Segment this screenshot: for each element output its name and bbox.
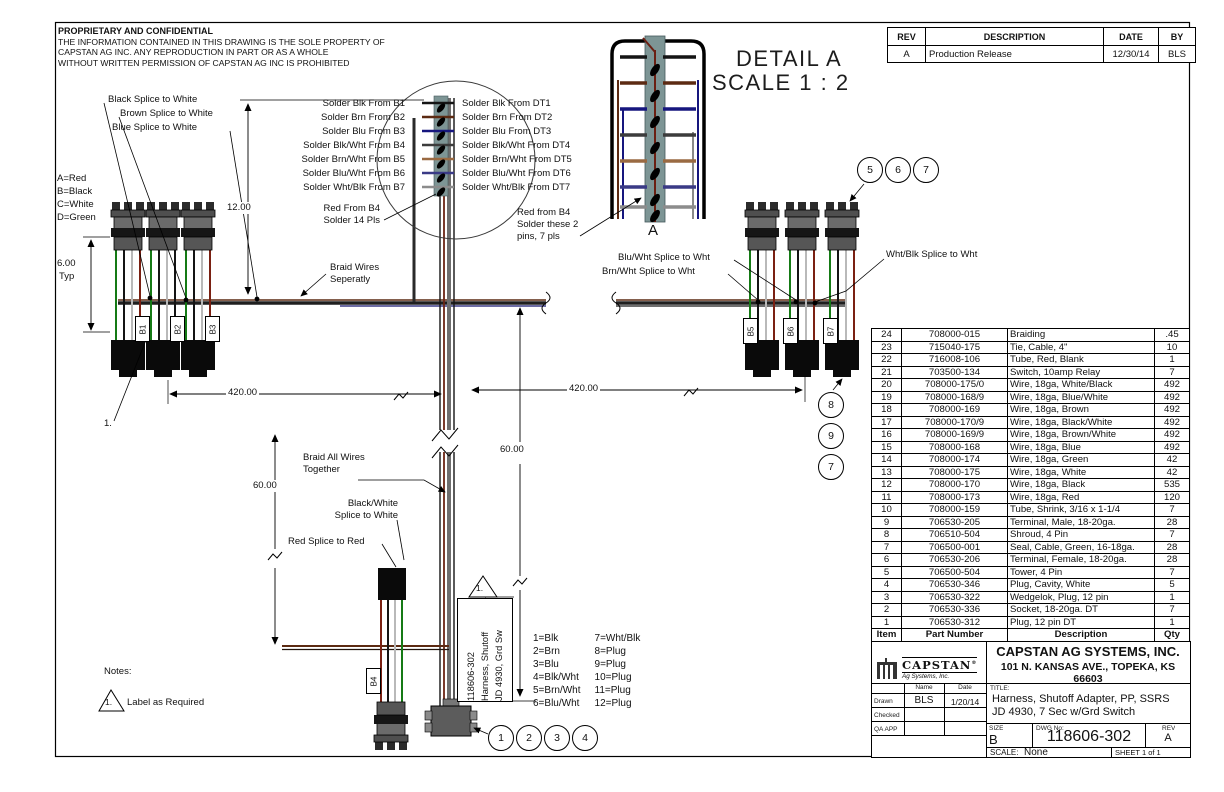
table-cell: 7 [1155,604,1190,617]
company-name: CAPSTAN AG SYSTEMS, INC. [986,644,1190,659]
table-cell: 708000-170/9 [902,416,1008,429]
table-cell: 708000-174 [902,454,1008,467]
table-cell: 708000-175 [902,466,1008,479]
table-cell: Wire, 18ga, Brown/White [1008,429,1155,442]
wire-legend-right: 7=Wht/Blk8=Plug9=Plug10=Plug11=Plug12=Pl… [595,632,641,710]
dim-420-right: 420.00 [567,383,600,395]
text-line: Solder Wht/Blk From B7 [255,181,405,195]
blu-wht-splice-label: Blu/Wht Splice to Wht [618,252,710,264]
wire-legend: 1=Blk2=Brn3=Blu4=Blk/Wht5=Brn/Wht6=Blu/W… [533,632,640,710]
table-cell: 708000-168/9 [902,391,1008,404]
text-line: 6=Blu/Wht [533,697,581,710]
company-address: 101 N. KANSAS AVE., TOPEKA, KS 66603 [986,661,1190,683]
connector-label-b7: B7 [823,318,838,344]
connector-label-b2: B2 [170,316,185,342]
table-row: 12708000-170Wire, 18ga, Black535 [872,479,1190,492]
table-row: 4706530-346Plug, Cavity, White5 [872,579,1190,592]
text-line: Solder Brn From DT2 [462,111,572,125]
table-cell: 3 [872,591,902,604]
table-row: 20708000-175/0Wire, 18ga, White/Black492 [872,379,1190,392]
table-cell: Plug, 12 pin DT [1008,616,1155,629]
text-line: Braid All Wires [303,452,365,464]
text-line: 7=Wht/Blk [595,632,641,645]
table-cell: 20 [872,379,902,392]
table-cell: 535 [1155,479,1190,492]
table-cell: 7 [1155,366,1190,379]
table-cell: 706530-206 [902,554,1008,567]
text-line: 4=Blk/Wht [533,671,581,684]
text-line: 118606-302 [464,599,478,701]
table-cell: Plug, Cavity, White [1008,579,1155,592]
text-line: Red from B4 [517,207,578,219]
dim-420-left: 420.00 [226,387,259,399]
desc-col: DESCRIPTION [926,28,1104,46]
size-label: SIZE [989,725,1003,732]
qa-app-label: QA APP [874,726,898,733]
table-cell: Production Release [926,46,1104,63]
text-line: Solder Blu From B3 [255,125,405,139]
table-row: 9706530-205Terminal, Male, 18-20ga.28 [872,516,1190,529]
text-line: Together [303,464,365,476]
sheet-number: SHEET 1 of 1 [1115,748,1161,757]
table-cell: 706500-504 [902,566,1008,579]
table-cell: 708000-168 [902,441,1008,454]
capstan-logo-icon [876,658,898,680]
by-col: BY [1159,28,1196,46]
detail-a-view [612,36,704,224]
notes-title: Notes: [104,666,131,678]
table-cell: 16 [872,429,902,442]
table-cell: 7 [1155,529,1190,542]
notice-lines: THE INFORMATION CONTAINED IN THIS DRAWIN… [58,37,385,68]
braid-all-label: Braid All WiresTogether [303,452,365,476]
drawn-label: Drawn [874,698,893,705]
notes-text: Label as Required [127,697,204,709]
table-cell: Braiding [1008,329,1155,342]
table-cell: 715040-175 [902,341,1008,354]
text-line: CAPSTAN AG INC. ANY REPRODUCTION IN PART… [58,47,385,57]
table-row: 6706530-206Terminal, Female, 18-20ga.28 [872,554,1190,567]
text-line: A=Red [57,172,96,185]
table-cell: 492 [1155,379,1190,392]
table-cell: 10 [1155,341,1190,354]
solder-labels-left: Solder Blk From B1Solder Brn From B2Sold… [255,97,405,195]
table-cell: 12 [872,479,902,492]
text-line: C=White [57,198,96,211]
checked-label: Checked [874,712,900,719]
flag-note-number: 1. [476,583,483,593]
table-cell: 42 [1155,466,1190,479]
text-line: 9 [818,423,844,449]
title-label: TITLE: [990,685,1010,692]
rev-header-row: REV DESCRIPTION DATE BY [888,28,1196,46]
table-cell: 708000-169 [902,404,1008,417]
table-cell: 42 [1155,454,1190,467]
table-row: 23715040-175Tie, Cable, 4"10 [872,341,1190,354]
table-cell: Wire, 18ga, Blue/White [1008,391,1155,404]
text-line: Solder Wht/Blk From DT7 [462,181,572,195]
text-line: 10=Plug [595,671,641,684]
text-line: 2=Brn [533,645,581,658]
dim-6-00-typ: Typ [59,271,74,283]
notes-flag-number: 1. [105,697,112,707]
text-line: Solder Brn/Wht From B5 [255,153,405,167]
table-cell: 28 [1155,516,1190,529]
harness-tag-box: 118606-302Harness, ShutoffJD 4930, Grd S… [457,598,513,702]
table-cell: 23 [872,341,902,354]
table-cell: Terminal, Female, 18-20ga. [1008,554,1155,567]
table-row: 3706530-322Wedgelok, Plug, 12 pin1 [872,591,1190,604]
table-cell: 22 [872,354,902,367]
table-cell: 1 [1155,591,1190,604]
table-cell: 15 [872,441,902,454]
table-row: 2706530-336Socket, 18-20ga. DT7 [872,604,1190,617]
text-line: THE INFORMATION CONTAINED IN THIS DRAWIN… [58,37,385,47]
rev-rows: AProduction Release12/30/14BLS [888,46,1196,63]
text-line: pins, 7 pls [517,231,578,243]
table-cell: Wire, 18ga, Black/White [1008,416,1155,429]
table-cell: 708000-015 [902,329,1008,342]
table-cell: 492 [1155,391,1190,404]
title-block: CAPSTAN® Ag Systems, Inc. CAPSTAN AG SYS… [871,641,1191,758]
table-cell: Terminal, Male, 18-20ga. [1008,516,1155,529]
text-line: D=Green [57,211,96,224]
detail-scale: SCALE 1 : 2 [712,70,850,96]
table-row: 22716008-106Tube, Red, Blank1 [872,354,1190,367]
table-row: 1706530-312Plug, 12 pin DT1 [872,616,1190,629]
note-flags [99,576,514,711]
table-cell: 5 [872,566,902,579]
text-line: 5=Brn/Wht [533,684,581,697]
table-cell: 7 [1155,504,1190,517]
table-cell: 1 [1155,354,1190,367]
table-cell: 492 [1155,404,1190,417]
balloons-1-2-3-4: 1234 [488,725,598,751]
table-cell: 492 [1155,441,1190,454]
table-cell: 706530-336 [902,604,1008,617]
dim-6-00: 6.00 [57,258,76,270]
text-line: Solder Blu From DT3 [462,125,572,139]
table-cell: 1 [1155,616,1190,629]
text-line: JD 4930, Grd Sw [492,599,506,701]
table-cell: 8 [872,529,902,542]
drawn-date: 1/20/14 [945,697,985,707]
bom-table: 24708000-015Braiding.4523715040-175Tie, … [871,328,1190,642]
table-cell: Shroud, 4 Pin [1008,529,1155,542]
revision-table: REV DESCRIPTION DATE BY AProduction Rele… [887,27,1196,63]
brown-splice-label: Brown Splice to White [120,108,213,120]
table-cell: Switch, 10amp Relay [1008,366,1155,379]
company-logo: CAPSTAN® Ag Systems, Inc. [872,642,992,689]
text-line: Solder Blk/Wht From DT4 [462,139,572,153]
table-row: 14708000-174Wire, 18ga, Green42 [872,454,1190,467]
name-col-label: Name [906,684,942,691]
wht-blk-splice-label: Wht/Blk Splice to Wht [886,249,977,261]
balloons-5-6-7: 567 [857,157,939,183]
table-cell: 706530-346 [902,579,1008,592]
table-cell: Tower, 4 Pin [1008,566,1155,579]
table-cell: 5 [1155,579,1190,592]
table-cell: 19 [872,391,902,404]
text-line: WITHOUT WRITTEN PERMISSION OF CAPSTAN AG… [58,58,385,68]
table-cell: Tube, Red, Blank [1008,354,1155,367]
table-cell: Tie, Cable, 4" [1008,341,1155,354]
proprietary-notice: PROPRIETARY AND CONFIDENTIAL THE INFORMA… [58,26,385,68]
drawn-name: BLS [905,695,943,706]
text-line: 4 [572,725,598,751]
table-cell: 24 [872,329,902,342]
scale-label: SCALE: [990,748,1018,757]
text-line: 8=Plug [595,645,641,658]
item-1-callout: 1. [104,418,112,430]
text-line: 7 [913,157,939,183]
table-cell: 21 [872,366,902,379]
logo-subtitle: Ag Systems, Inc. [902,673,977,680]
table-cell: 706500-001 [902,541,1008,554]
table-cell: A [888,46,926,63]
table-cell: Wire, 18ga, Red [1008,491,1155,504]
table-cell: 703500-134 [902,366,1008,379]
table-cell: 9 [872,516,902,529]
table-row: 17708000-170/9Wire, 18ga, Black/White492 [872,416,1190,429]
table-cell: Wire, 18ga, Blue [1008,441,1155,454]
table-cell: 14 [872,454,902,467]
dim-60-left: 60.00 [251,480,279,492]
wire-color-key: A=RedB=BlackC=WhiteD=Green [57,172,96,224]
balloons-8-9-7: 897 [818,392,844,480]
b4-branch [374,568,408,750]
table-cell: Socket, 18-20ga. DT [1008,604,1155,617]
table-cell: .45 [1155,329,1190,342]
table-cell: 1 [872,616,902,629]
company-info: CAPSTAN AG SYSTEMS, INC. 101 N. KANSAS A… [986,644,1190,683]
table-row: 13708000-175Wire, 18ga, White42 [872,466,1190,479]
table-cell: 708000-159 [902,504,1008,517]
right-connector-group [745,202,859,377]
text-line: Solder Brn From B2 [255,111,405,125]
text-line: B=Black [57,185,96,198]
bom-header-row: Item Part Number Description Qty [872,629,1190,642]
table-cell: Tube, Shrink, 3/16 x 1-1/4 [1008,504,1155,517]
table-row: 10708000-159Tube, Shrink, 3/16 x 1-1/47 [872,504,1190,517]
text-line: 3 [544,725,570,751]
table-row: 11708000-173Wire, 18ga, Red120 [872,491,1190,504]
table-cell: 4 [872,579,902,592]
text-line: 6 [885,157,911,183]
text-line: 1 [488,725,514,751]
table-cell: 28 [1155,541,1190,554]
table-cell: 7 [872,541,902,554]
harness-tag-text: 118606-302Harness, ShutoffJD 4930, Grd S… [458,599,512,701]
table-cell: 716008-106 [902,354,1008,367]
wire-legend-left: 1=Blk2=Brn3=Blu4=Blk/Wht5=Brn/Wht6=Blu/W… [533,632,581,710]
dim-12-00: 12.00 [225,202,253,214]
logo-wordmark: CAPSTAN® [902,657,977,673]
text-line: Solder Brn/Wht From DT5 [462,153,572,167]
text-line: Solder these 2 [517,219,578,231]
dim-60-right: 60.00 [498,444,526,456]
date-col: DATE [1104,28,1159,46]
table-cell: Wire, 18ga, Black [1008,479,1155,492]
connector-label-b6: B6 [783,318,798,344]
table-cell: Seal, Cable, Green, 16-18ga. [1008,541,1155,554]
table-row: 18708000-169Wire, 18ga, Brown492 [872,404,1190,417]
table-cell: 708000-173 [902,491,1008,504]
red-from-b4-right: Red from B4Solder these 2pins, 7 pls [517,207,578,243]
table-row: 15708000-168Wire, 18ga, Blue492 [872,441,1190,454]
brn-wht-splice-label: Brn/Wht Splice to Wht [602,266,695,278]
table-cell: 17 [872,416,902,429]
left-connector-group [111,202,215,377]
dwg-no-value: 118606-302 [1033,728,1145,746]
table-cell: 13 [872,466,902,479]
size-value: B [989,732,1029,747]
scale-value: None [1024,747,1048,758]
table-cell: 708000-170 [902,479,1008,492]
table-cell: 28 [1155,554,1190,567]
table-cell: Wire, 18ga, White [1008,466,1155,479]
text-line: Solder Blk/Wht From B4 [255,139,405,153]
connector-label-b1: B1 [135,316,150,342]
text-line: 3=Blu [533,658,581,671]
connector-label-b5: B5 [743,318,758,344]
solder-labels-right: Solder Blk From DT1Solder Brn From DT2So… [462,97,572,195]
text-line: Solder Blu/Wht From B6 [255,167,405,181]
table-cell: 11 [872,491,902,504]
table-cell: 708000-169/9 [902,429,1008,442]
table-cell: Wire, 18ga, Brown [1008,404,1155,417]
table-cell: 120 [1155,491,1190,504]
table-cell: BLS [1159,46,1196,63]
table-cell: Wire, 18ga, White/Black [1008,379,1155,392]
black-splice-label: Black Splice to White [108,94,197,106]
table-row: 16708000-169/9Wire, 18ga, Brown/White492 [872,429,1190,442]
table-row: AProduction Release12/30/14BLS [888,46,1196,63]
table-cell: Wedgelok, Plug, 12 pin [1008,591,1155,604]
table-row: 21703500-134Switch, 10amp Relay7 [872,366,1190,379]
text-line: Harness, Shutoff [478,599,492,701]
connector-label-b3: B3 [205,316,220,342]
text-line: Red From B4 [300,203,380,215]
table-row: 19708000-168/9Wire, 18ga, Blue/White492 [872,391,1190,404]
table-cell: 706530-205 [902,516,1008,529]
table-cell: 706530-312 [902,616,1008,629]
table-cell: 2 [872,604,902,617]
text-line: Solder 14 Pls [300,215,380,227]
table-cell: 708000-175/0 [902,379,1008,392]
text-line: Braid Wires [330,262,379,274]
red-splice-label: Red Splice to Red [288,536,365,548]
table-cell: 6 [872,554,902,567]
table-row: 7706500-001Seal, Cable, Green, 16-18ga.2… [872,541,1190,554]
text-line: 5 [857,157,883,183]
bw-splice-label: Black/WhiteSplice to White [312,498,398,522]
dt-connector [425,699,477,736]
table-cell: Wire, 18ga, Green [1008,454,1155,467]
text-line: Splice to White [312,510,398,522]
rev-value: A [1148,732,1188,744]
text-line: Solder Blk From DT1 [462,97,572,111]
text-line: 8 [818,392,844,418]
notice-title: PROPRIETARY AND CONFIDENTIAL [58,26,385,37]
text-line: 2 [516,725,542,751]
detail-view-letter: A [648,222,658,240]
main-harness-run [118,292,845,314]
table-row: 24708000-015Braiding.45 [872,329,1190,342]
blue-splice-label: Blue Splice to White [112,122,197,134]
date-col-label: Date [946,684,984,691]
table-cell: 10 [872,504,902,517]
text-line: Seperatly [330,274,379,286]
table-cell: 7 [1155,566,1190,579]
red-from-b4-left: Red From B4Solder 14 Pls [300,203,380,227]
table-row: 8706510-504Shroud, 4 Pin7 [872,529,1190,542]
drawing-title: Harness, Shutoff Adapter, PP, SSRS JD 49… [992,693,1188,719]
text-line: Solder Blu/Wht From DT6 [462,167,572,181]
text-line: Solder Blk From B1 [255,97,405,111]
text-line: Black/White [312,498,398,510]
bom-rows: 24708000-015Braiding.4523715040-175Tie, … [872,329,1190,629]
detail-title: DETAIL A [736,46,842,72]
table-row: 5706500-504Tower, 4 Pin7 [872,566,1190,579]
table-cell: 18 [872,404,902,417]
table-cell: 492 [1155,416,1190,429]
text-line: 12=Plug [595,697,641,710]
text-line: 9=Plug [595,658,641,671]
connector-label-b4: B4 [366,668,381,694]
drawing-sheet: PROPRIETARY AND CONFIDENTIAL THE INFORMA… [0,0,1224,792]
table-cell: 706510-504 [902,529,1008,542]
table-cell: 706530-322 [902,591,1008,604]
table-cell: 12/30/14 [1104,46,1159,63]
text-line: 1=Blk [533,632,581,645]
text-line: 7 [818,454,844,480]
braid-separately-label: Braid WiresSeperatly [330,262,379,286]
rev-label: REV [1162,725,1175,732]
text-line: 11=Plug [595,684,641,697]
rev-col: REV [888,28,926,46]
table-cell: 492 [1155,429,1190,442]
